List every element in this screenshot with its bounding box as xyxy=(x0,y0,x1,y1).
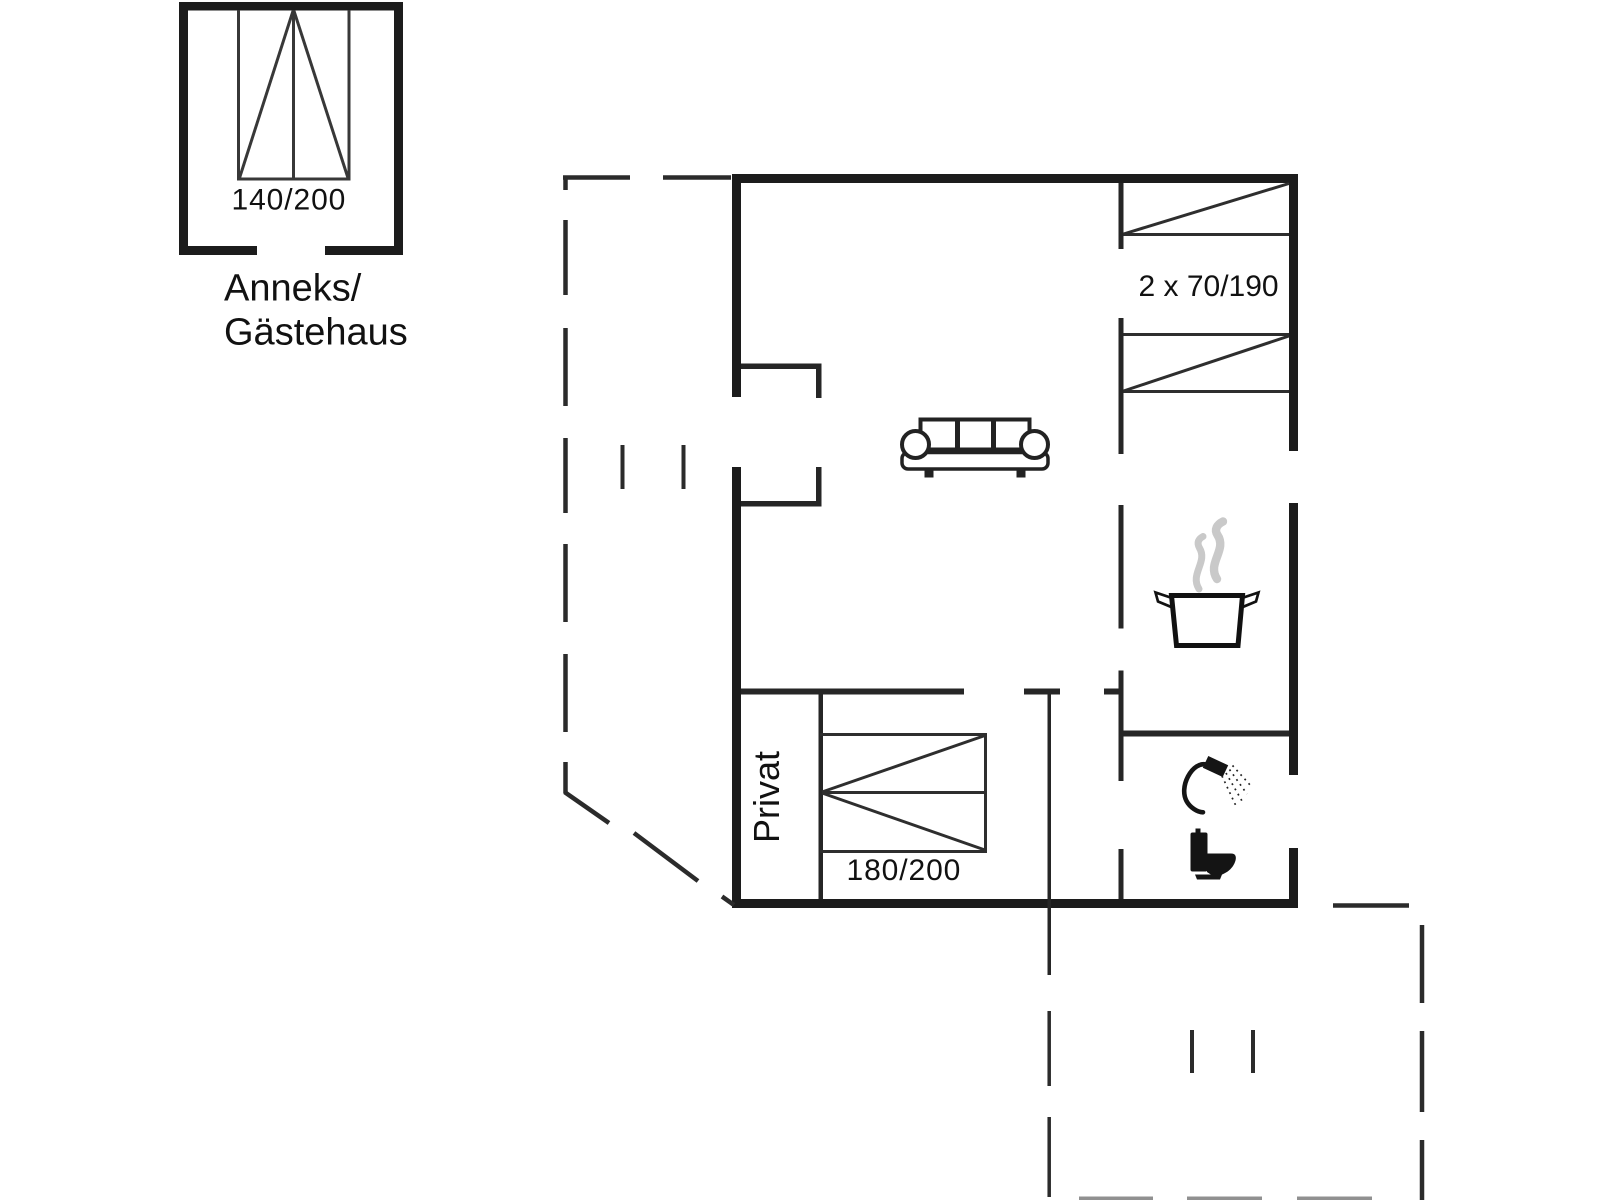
svg-text:Gästehaus: Gästehaus xyxy=(224,312,408,354)
svg-text:180/200: 180/200 xyxy=(847,854,962,887)
svg-text:140/200: 140/200 xyxy=(232,184,347,217)
svg-text:Anneks/: Anneks/ xyxy=(224,268,362,310)
svg-text:2 x 70/190: 2 x 70/190 xyxy=(1139,270,1279,303)
svg-text:Privat: Privat xyxy=(746,751,787,843)
